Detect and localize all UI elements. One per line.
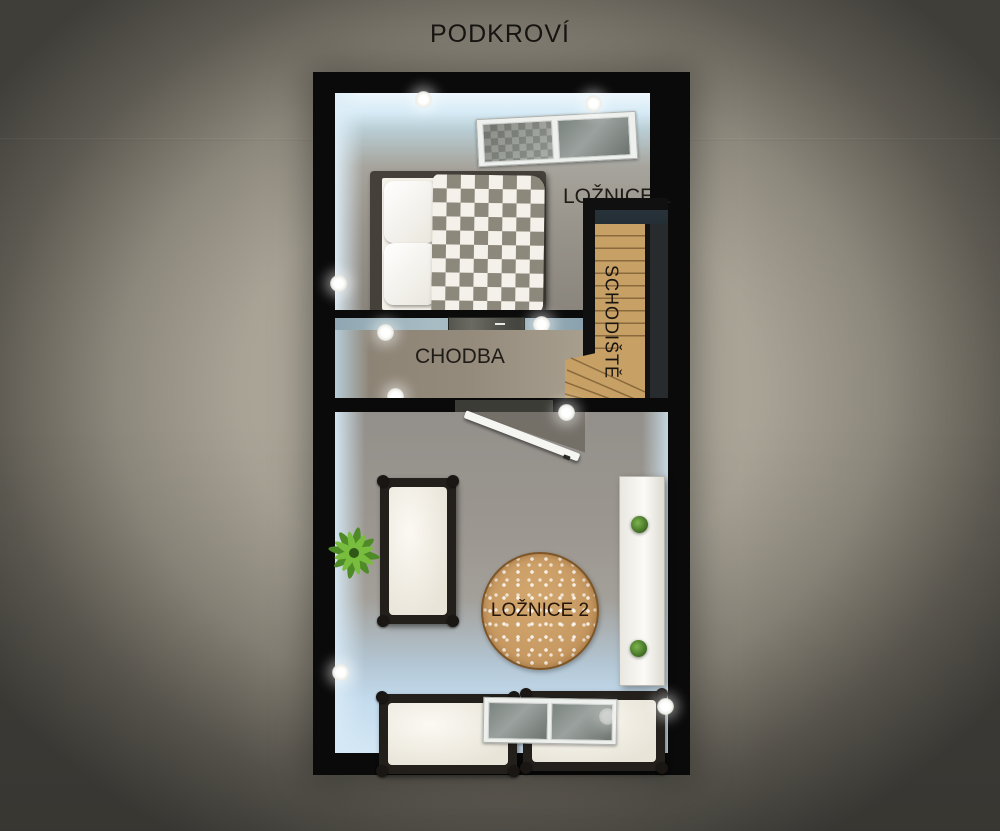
wall-light-icon [377, 324, 394, 341]
wall-light-icon [332, 664, 349, 681]
pillow [384, 181, 436, 243]
wall-light-icon [585, 95, 602, 112]
skylight-window-top [476, 111, 638, 167]
room-loznice2: LOŽNICE 2 [335, 412, 668, 753]
door-handle [563, 454, 571, 460]
palm-plant-icon [323, 522, 385, 584]
bed-post [377, 475, 389, 487]
bed-post [656, 762, 668, 774]
checkered-blanket [431, 174, 545, 316]
bed-post [508, 765, 520, 777]
bed-post [447, 615, 459, 627]
bed-post [377, 615, 389, 627]
potted-plant-icon [631, 516, 648, 533]
mattress [389, 487, 447, 615]
wall-light-icon [558, 404, 575, 421]
single-bed-left [380, 478, 456, 624]
wall [650, 72, 668, 198]
window-pane [488, 702, 549, 740]
wall-loznice1-chodba [335, 310, 583, 330]
floor-plan: LOŽNICE 1 CHODBA SCHODIŠ [313, 72, 690, 775]
wall-light-icon [330, 275, 347, 292]
double-bed [370, 171, 546, 317]
window-pane [482, 120, 554, 163]
room-label-loznice2: LOŽNICE 2 [483, 554, 597, 668]
bed-post [447, 475, 459, 487]
window-pane [557, 116, 631, 159]
page-title: PODKROVÍ [0, 20, 1000, 49]
wall-light-icon [415, 91, 432, 108]
wall-light-icon [599, 708, 616, 725]
potted-plant-icon [630, 640, 647, 657]
staircase-enclosure: SCHODIŠTĚ [583, 198, 668, 400]
skylight-window-bottom [483, 697, 618, 745]
room-label-chodba: CHODBA [415, 345, 505, 369]
door-opening [455, 400, 553, 412]
wall-chodba-loznice2 [335, 398, 668, 412]
bed-post [376, 765, 388, 777]
round-rug: LOŽNICE 2 [481, 552, 599, 670]
wall-light-icon [657, 698, 674, 715]
room-label-schodiste: SCHODIŠTĚ [591, 234, 631, 410]
room-chodba: CHODBA [335, 330, 583, 398]
pillow [384, 243, 436, 305]
bed-post [520, 762, 532, 774]
stairwell-shadow [650, 224, 668, 400]
door-handle [495, 323, 505, 325]
bed-post [376, 691, 388, 703]
